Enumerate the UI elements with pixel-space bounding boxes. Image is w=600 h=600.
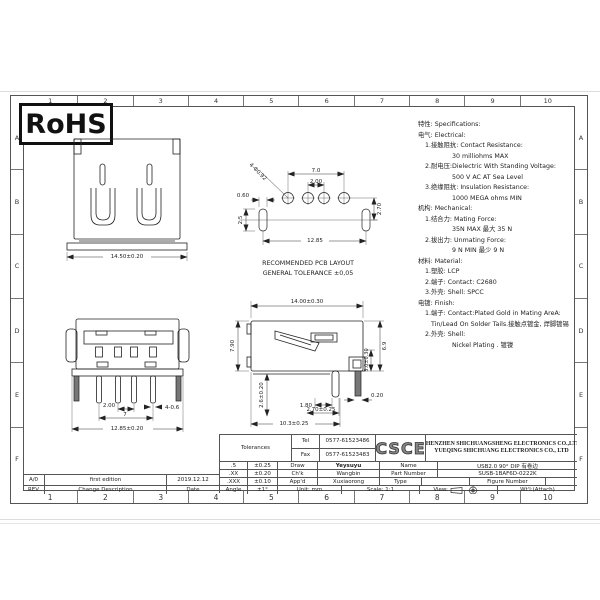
revision-header-date: Date: [167, 486, 219, 495]
tol-value: ±0.10: [248, 478, 278, 485]
dimension-label: 12.85±0.20: [111, 426, 144, 432]
pcb-dimensions: 7.0 2.00 2.70 0.60 2.5 12.85 4-Φ0.9: [237, 162, 383, 245]
field-value: USB2.0 90° DIP 有卷边: [438, 462, 577, 469]
spec-line: 2.拔出力: Unmating Force:: [418, 236, 586, 247]
frame-col-label: 8: [410, 96, 465, 106]
person-name: Yeysuyu: [318, 462, 380, 469]
dimension-label: 2.70±0.25: [306, 407, 336, 413]
field-value: SUSB-1BAF6D-0222K: [438, 470, 577, 477]
spec-line: 1.接触阻抗: Contact Resistance:: [418, 141, 586, 152]
spec-line: 30 milliohms MAX: [418, 152, 586, 163]
engineering-drawing-page: 1 2 3 4 5 6 7 8 9 10 1 2 3 4 5 6 7 8 9 1…: [0, 0, 600, 600]
spec-line: 材料: Material:: [418, 257, 586, 268]
frame-col-label: 6: [299, 96, 354, 106]
frame-row-labels-left: A B C D E F: [11, 106, 23, 491]
pcb-holes: [239, 191, 378, 231]
revision-id: A/0: [23, 475, 45, 485]
frame-col-label: 5: [244, 96, 299, 106]
title-block: Tolerances Tel Fax 0577-61523486 0577-61…: [219, 434, 577, 493]
side-view-dimensions: 14.00±0.30 7.90 6.9 3.0±0.30 2.6±0.20 1.…: [230, 299, 388, 427]
view-cell: View:: [420, 486, 498, 494]
frame-col-label: 10: [521, 96, 575, 106]
spec-line: 特性: Specifications:: [418, 120, 586, 131]
spec-line: 9 N MIN 最少 9 N: [418, 246, 586, 257]
frame-col-label: 4: [189, 96, 244, 106]
role-label: Ch'k: [278, 470, 318, 477]
scan-edge-line: [0, 523, 600, 524]
frame-row-label: E: [575, 363, 587, 427]
tel-label: Tel: [292, 435, 319, 449]
dimension-label: 10.3±0.25: [279, 421, 309, 427]
scan-edge-line: [0, 519, 600, 520]
spec-line: 1.塑胶: LCP: [418, 267, 586, 278]
revision-block: A/0 first edition 2019.12.12 REV Change …: [23, 474, 219, 493]
dimension-label: 7.90: [230, 339, 236, 352]
dimension-label: 12.85: [307, 238, 323, 244]
scan-edge-line: [0, 91, 600, 92]
spec-line: 2.端子: Contact: C2680: [418, 278, 586, 289]
frame-row-label: F: [11, 428, 23, 491]
dimension-label: 2.00: [310, 179, 323, 185]
view-label: View:: [433, 487, 448, 493]
figure-number-value: [546, 478, 577, 485]
role-label: App'd: [278, 478, 318, 485]
frame-row-label: C: [11, 235, 23, 299]
spec-line: Tin/Lead On Solder Tails.接触点镀金, 焊脚镀锡: [418, 320, 586, 331]
spec-line: 35N MAX 最大 35 N: [418, 225, 586, 236]
role-label: Draw: [278, 462, 318, 469]
dimension-label: 2.70: [377, 202, 383, 215]
frame-row-label: E: [11, 363, 23, 427]
company-logo: CSCE: [376, 435, 426, 461]
spec-line: 机构: Mechanical:: [418, 204, 586, 215]
revision-description: first edition: [45, 475, 167, 485]
dimension-label: 2.5: [238, 215, 244, 224]
field-label: Type: [380, 478, 422, 485]
pin-callout-label: 4-0.6: [165, 405, 180, 411]
front-face-view-drawing: 14.50±0.20: [57, 127, 197, 267]
spec-line: 1.结合力: Mating Force:: [418, 215, 586, 226]
dimension-label: 2.6±0.20: [259, 382, 265, 408]
figure-number-label: Figure Number: [470, 478, 546, 485]
spec-line: 电气: Electrical:: [418, 131, 586, 142]
front-view-with-legs-drawing: 2.00 7 4-0.6 12.85±0.20: [61, 301, 226, 453]
tol-value: ±0.25: [248, 462, 278, 469]
tolerances-header: Tolerances: [220, 435, 292, 461]
sheet-frame: 1 2 3 4 5 6 7 8 9 10 1 2 3 4 5 6 7 8 9 1…: [10, 95, 588, 504]
field-label: Name: [380, 462, 438, 469]
dimension-label: 7.0: [312, 168, 321, 174]
hole-callout-label: 4-Φ0.92: [248, 162, 268, 182]
tol-digit: .XX: [220, 470, 248, 477]
tel-fax-values: 0577-61523486 0577-61523483: [320, 435, 376, 461]
front-view-dimensions: 2.00 7 4-0.6 12.85±0.20: [72, 377, 183, 432]
dimension-label: 3.0±0.30: [364, 348, 370, 371]
pcb-caption-line1: RECOMMENDED PCB LAYOUT: [262, 260, 354, 267]
projection-symbol-icon: [450, 486, 484, 494]
revision-header-rev: REV: [23, 486, 45, 495]
frame-row-label: B: [11, 170, 23, 234]
revision-header-description: Change Description: [45, 486, 167, 495]
frame-col-label: 9: [465, 96, 520, 106]
fax-label: Fax: [292, 449, 319, 462]
tol-digit: .5: [220, 462, 248, 469]
front-face-outline: [67, 139, 187, 250]
fax-value: 0577-61523483: [320, 449, 375, 462]
dimension-label: 14.50±0.20: [111, 254, 144, 260]
scale-cell: Scale: 1:1: [342, 486, 420, 494]
spec-line: 1000 MEGA ohms MIN: [418, 194, 586, 205]
tel-value: 0577-61523486: [320, 435, 375, 449]
tol-digit: .XXX: [220, 478, 248, 485]
spec-line: Nickel Plating . 镀镍: [418, 341, 586, 352]
connector-outline: [66, 319, 189, 403]
field-value: [422, 478, 470, 485]
front-face-width-dimension: 14.50±0.20: [67, 252, 187, 261]
frame-row-label: D: [11, 299, 23, 363]
frame-col-label: 7: [355, 96, 410, 106]
dimension-label: 7: [123, 412, 127, 418]
company-line2: YUEQING SHICHUANG ELECTRONICS CO., LTD: [434, 448, 568, 456]
company-name-block: SHENZHEN SHICHUANGSHENG ELECTRONICS CO.,…: [426, 435, 577, 461]
dimension-label: 6.9: [382, 341, 388, 350]
tel-fax-labels: Tel Fax: [292, 435, 320, 461]
dimension-label: 0.60: [237, 193, 250, 199]
dimension-label: 0.20: [371, 393, 384, 399]
tol-digit: Angle: [220, 486, 248, 494]
spec-line: 500 V AC AT Sea Level: [418, 173, 586, 184]
tol-value: ±0.20: [248, 470, 278, 477]
csce-logo: CSCE: [376, 439, 426, 458]
spec-line: 电镀: Finish:: [418, 299, 586, 310]
pcb-layout-drawing: 7.0 2.00 2.70 0.60 2.5 12.85 4-Φ0.9: [231, 159, 386, 285]
dimension-label: 14.00±0.30: [291, 299, 324, 305]
specifications-block: 特性: Specifications: 电气: Electrical: 1.接触…: [418, 120, 586, 351]
person-name: Xuxiaorong: [318, 478, 380, 485]
dimension-label: 2.00: [103, 403, 116, 409]
unit-cell: Unit: mm: [278, 486, 342, 494]
tol-value: ±1°: [248, 486, 278, 494]
field-label: Part Number: [380, 470, 438, 477]
spec-line: 1.端子: Contact:Plated Gold in Mating AreA…: [418, 309, 586, 320]
frame-col-label: 3: [134, 96, 189, 106]
company-line1: SHENZHEN SHICHUANGSHENG ELECTRONICS CO.,…: [426, 441, 577, 449]
person-name: Wangbin: [318, 470, 380, 477]
pcb-caption-line2: GENERAL TOLERANCE ±0,05: [263, 270, 354, 277]
spec-line: 3.外壳: Shell: SPCC: [418, 288, 586, 299]
weight-cell: Wt'l:(Attach): [498, 486, 577, 494]
spec-line: 2.外壳: Shell:: [418, 330, 586, 341]
side-view-drawing: 14.00±0.30 7.90 6.9 3.0±0.30 2.6±0.20 1.…: [223, 294, 388, 444]
spec-line: 2.耐电压:Dielectric With Standing Voltage:: [418, 162, 586, 173]
spec-line: 3.绝缘阻抗: Insulation Resistance:: [418, 183, 586, 194]
revision-date: 2019.12.12: [167, 475, 219, 485]
